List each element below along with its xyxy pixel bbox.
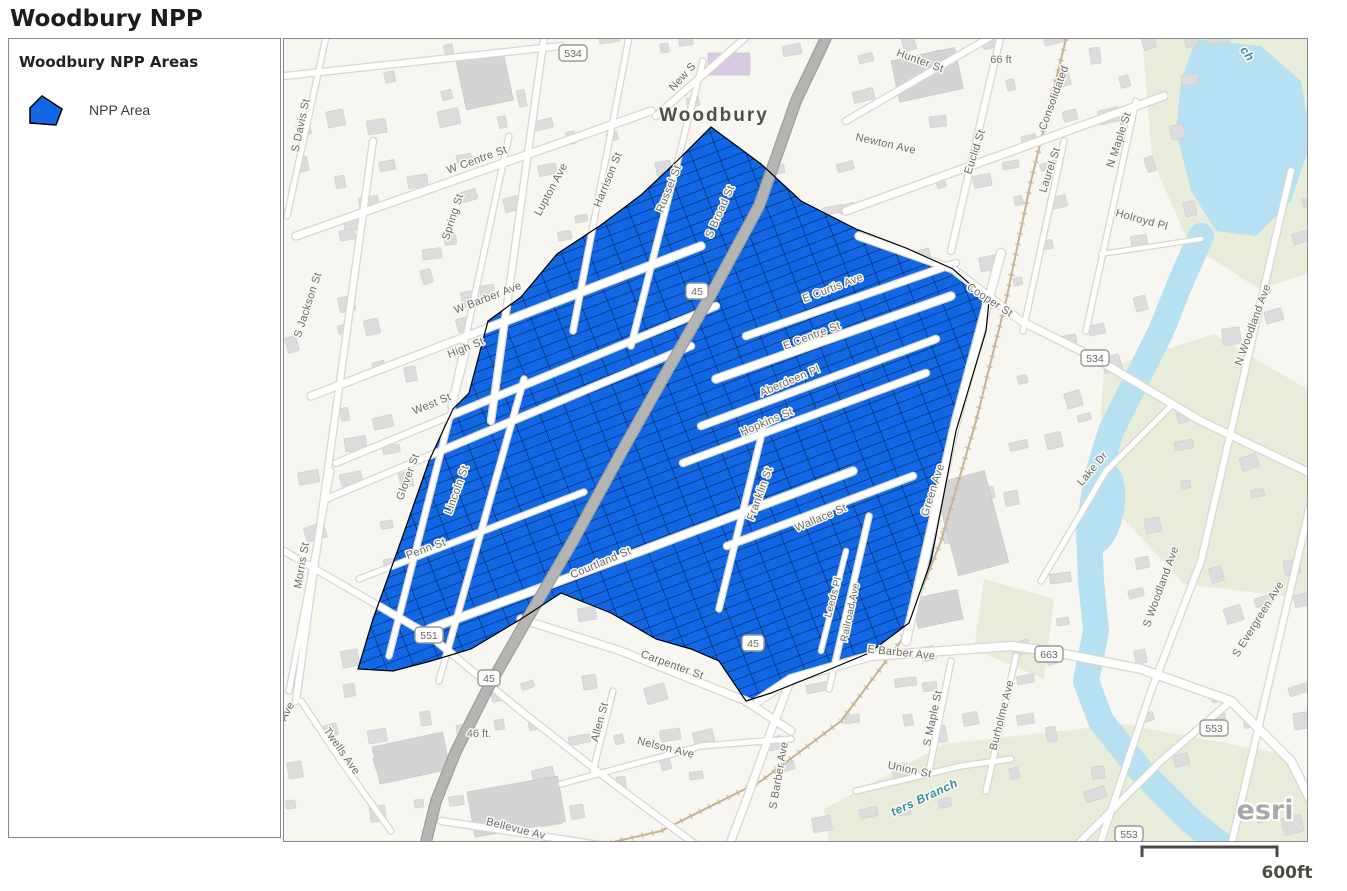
map-viewport[interactable]: S Davis StS Jackson StMorris StSpring St… (283, 38, 1308, 842)
scale-bar-line (1142, 847, 1277, 857)
svg-text:534: 534 (1086, 353, 1104, 365)
legend-title: Woodbury NPP Areas (19, 53, 280, 71)
esri-attribution: esri (1237, 795, 1294, 826)
route-shield: 45 (478, 670, 500, 686)
route-shield: 45 (686, 283, 708, 299)
svg-text:Woodbury: Woodbury (659, 105, 769, 126)
svg-text:553: 553 (1120, 829, 1138, 841)
svg-text:46 ft.: 46 ft. (467, 728, 491, 740)
legend-item-npp-area: NPP Area (27, 93, 280, 127)
elevation-label: 46 ft. (467, 728, 491, 740)
route-shield: 551 (415, 627, 443, 643)
scale-bar: 600ft (1130, 840, 1340, 890)
legend-item-label: NPP Area (89, 102, 150, 118)
route-shield: 553 (1200, 720, 1228, 736)
npp-area-swatch (27, 93, 65, 127)
svg-text:45: 45 (747, 638, 759, 650)
svg-text:534: 534 (564, 48, 582, 60)
svg-text:663: 663 (1040, 649, 1058, 661)
route-shield: 534 (1081, 350, 1109, 366)
svg-text:553: 553 (1205, 723, 1223, 735)
route-shield: 553 (1115, 826, 1143, 841)
page-title: Woodbury NPP (10, 6, 203, 32)
scale-label: 600ft (1261, 863, 1312, 883)
map-canvas[interactable]: S Davis StS Jackson StMorris StSpring St… (284, 39, 1307, 841)
page: Woodbury NPP Woodbury NPP Areas NPP Area… (0, 0, 1347, 891)
elevation-label: 66 ft (990, 54, 1011, 66)
route-shield: 534 (559, 45, 587, 61)
route-shield: 663 (1035, 646, 1063, 662)
legend-panel: Woodbury NPP Areas NPP Area (8, 38, 281, 838)
city-label: Woodbury (659, 105, 769, 126)
svg-text:45: 45 (691, 286, 703, 298)
route-shield: 45 (742, 635, 764, 651)
svg-text:551: 551 (420, 630, 438, 642)
svg-text:66 ft: 66 ft (990, 54, 1011, 66)
svg-text:45: 45 (483, 673, 495, 685)
